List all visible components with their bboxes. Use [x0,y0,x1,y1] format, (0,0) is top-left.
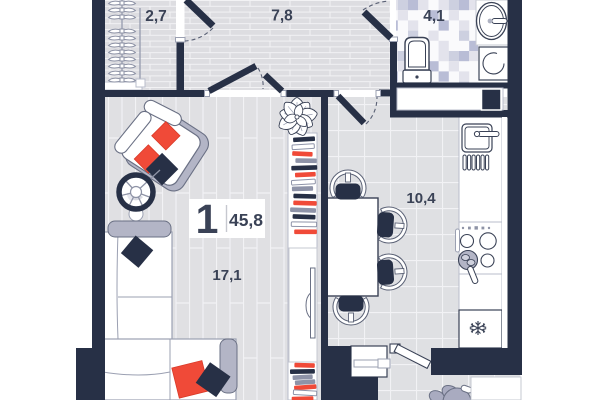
svg-text:7,8: 7,8 [271,8,293,25]
svg-text:1: 1 [196,196,219,242]
svg-text:2,7: 2,7 [145,8,167,25]
svg-text:45,8: 45,8 [229,210,263,230]
svg-text:10,4: 10,4 [406,190,436,207]
svg-text:4,1: 4,1 [423,8,445,25]
svg-text:17,1: 17,1 [212,267,241,284]
